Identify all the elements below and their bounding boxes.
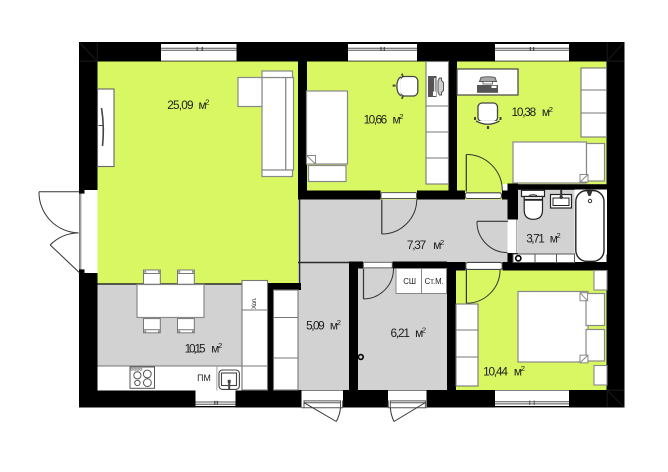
svg-text:10,44: 10,44 [483, 365, 508, 379]
svg-text:2: 2 [521, 364, 525, 373]
svg-text:10,66: 10,66 [364, 112, 388, 126]
svg-text:2: 2 [218, 341, 222, 350]
svg-text:2: 2 [422, 326, 426, 335]
svg-text:2: 2 [549, 105, 553, 114]
svg-text:3,71: 3,71 [526, 231, 545, 245]
svg-text:2: 2 [205, 98, 209, 107]
svg-text:10,15: 10,15 [185, 341, 206, 355]
svg-text:2: 2 [337, 318, 341, 327]
svg-text:25,09: 25,09 [167, 98, 193, 112]
svg-text:2: 2 [440, 238, 444, 247]
svg-text:10,38: 10,38 [512, 105, 537, 119]
svg-text:6,21: 6,21 [391, 326, 410, 340]
svg-text:ПМ: ПМ [197, 373, 211, 383]
svg-text:СШ: СШ [403, 277, 416, 286]
svg-text:7,37: 7,37 [407, 238, 426, 252]
svg-text:2: 2 [399, 112, 403, 121]
svg-text:2: 2 [557, 231, 561, 240]
svg-text:Хол.: Хол. [251, 297, 258, 309]
svg-text:5,09: 5,09 [306, 318, 325, 332]
svg-text:Ст.М.: Ст.М. [425, 277, 444, 286]
